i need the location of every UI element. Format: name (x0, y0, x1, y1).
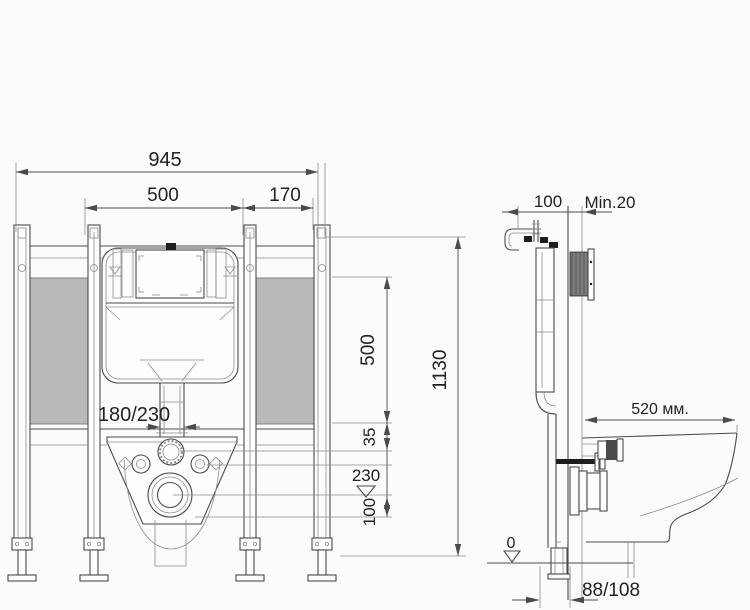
dim-label-945: 945 (148, 149, 181, 171)
front-view: 945 500 170 180/230 (8, 149, 466, 581)
dim-bowl-length: 520 мм. (585, 401, 737, 432)
dim-height-total: 1130 (326, 237, 466, 556)
dim-label-170: 170 (269, 185, 301, 206)
dim-inlet-offset: 180/230 (98, 404, 200, 430)
foot (80, 538, 108, 581)
dim-label-100-v: 100 (360, 498, 379, 526)
water-inlet-hole (158, 439, 184, 465)
foot (236, 538, 264, 581)
dim-column: 500 35 230 100 (332, 277, 392, 526)
cistern (102, 243, 238, 383)
frame-profile (536, 248, 556, 548)
foot (308, 538, 336, 581)
dim-outlet-distance: 88/108 (512, 566, 640, 608)
dim-label-0: 0 (507, 535, 516, 552)
flush-plate-window (136, 250, 204, 298)
drain-pipe-side (570, 467, 607, 515)
dim-label-230: 230 (352, 466, 380, 485)
installation-frame-drawing: 945 500 170 180/230 (0, 0, 750, 610)
dim-label-min20: Min.20 (584, 193, 635, 212)
dim-label-35: 35 (360, 428, 379, 447)
dim-width-frame: 500 170 (85, 185, 313, 235)
dim-label-500-side: 500 (358, 334, 379, 366)
dim-label-1130: 1130 (430, 350, 451, 391)
frame-feet (8, 538, 336, 581)
side-foot (548, 542, 570, 579)
dim-label-520: 520 мм. (631, 401, 689, 418)
right-panel (256, 278, 314, 424)
inlet-pipe-side (582, 439, 623, 461)
datum-triangle-icon (504, 551, 520, 562)
datum-zero: 0 (504, 535, 520, 562)
flush-rod-cap (166, 243, 176, 250)
dim-label-88-108: 88/108 (582, 580, 640, 601)
dim-label-500-top: 500 (147, 185, 179, 206)
left-panel (30, 278, 88, 424)
dim-label-100-h: 100 (534, 192, 562, 211)
foot (8, 538, 36, 581)
dim-depth: 100 Min.20 (502, 192, 636, 228)
side-view: 100 Min.20 (487, 192, 738, 608)
drain-pipe-front (155, 520, 186, 566)
flush-plate-spacer (570, 249, 594, 300)
wall-hook-bracket (505, 220, 558, 250)
technical-drawing-page: 945 500 170 180/230 (0, 0, 750, 610)
dim-label-180-230: 180/230 (98, 404, 170, 426)
